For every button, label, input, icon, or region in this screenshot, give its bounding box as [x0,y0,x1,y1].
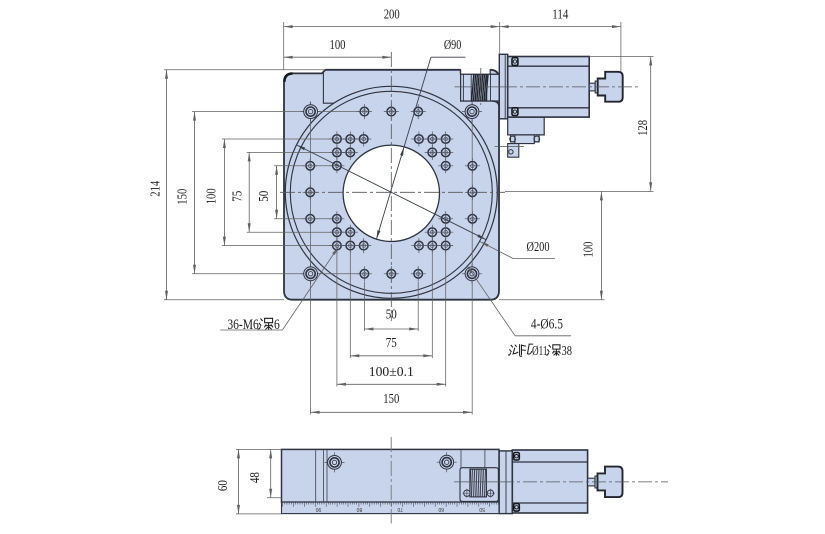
svg-text:48: 48 [248,472,263,483]
svg-text:75: 75 [386,336,397,351]
svg-text:90: 90 [316,506,322,512]
svg-text:36-M6: 36-M6 [227,317,259,333]
svg-text:150: 150 [176,189,191,205]
svg-text:150: 150 [383,392,399,407]
svg-text:50: 50 [479,506,485,512]
svg-text:Ø200: Ø200 [527,240,550,255]
svg-text:6: 6 [274,317,280,333]
svg-text:60: 60 [438,506,444,512]
svg-text:114: 114 [552,8,568,23]
svg-text:100: 100 [205,188,220,204]
svg-text:60: 60 [216,480,231,491]
svg-text:Ø11: Ø11 [532,344,548,359]
svg-text:Ø90: Ø90 [444,38,462,53]
svg-text:70: 70 [397,506,403,512]
svg-text:100±0.1: 100±0.1 [369,365,414,380]
svg-text:200: 200 [384,8,400,23]
svg-text:38: 38 [562,344,573,359]
svg-text:214: 214 [149,181,164,197]
svg-text:50: 50 [257,191,272,202]
svg-text:128: 128 [636,120,651,136]
svg-text:80: 80 [356,506,362,512]
svg-text:4-Ø6.5: 4-Ø6.5 [531,317,563,333]
svg-text:100: 100 [582,242,597,258]
svg-text:50: 50 [386,308,397,323]
svg-text:75: 75 [231,191,246,202]
svg-text:100: 100 [330,38,346,53]
